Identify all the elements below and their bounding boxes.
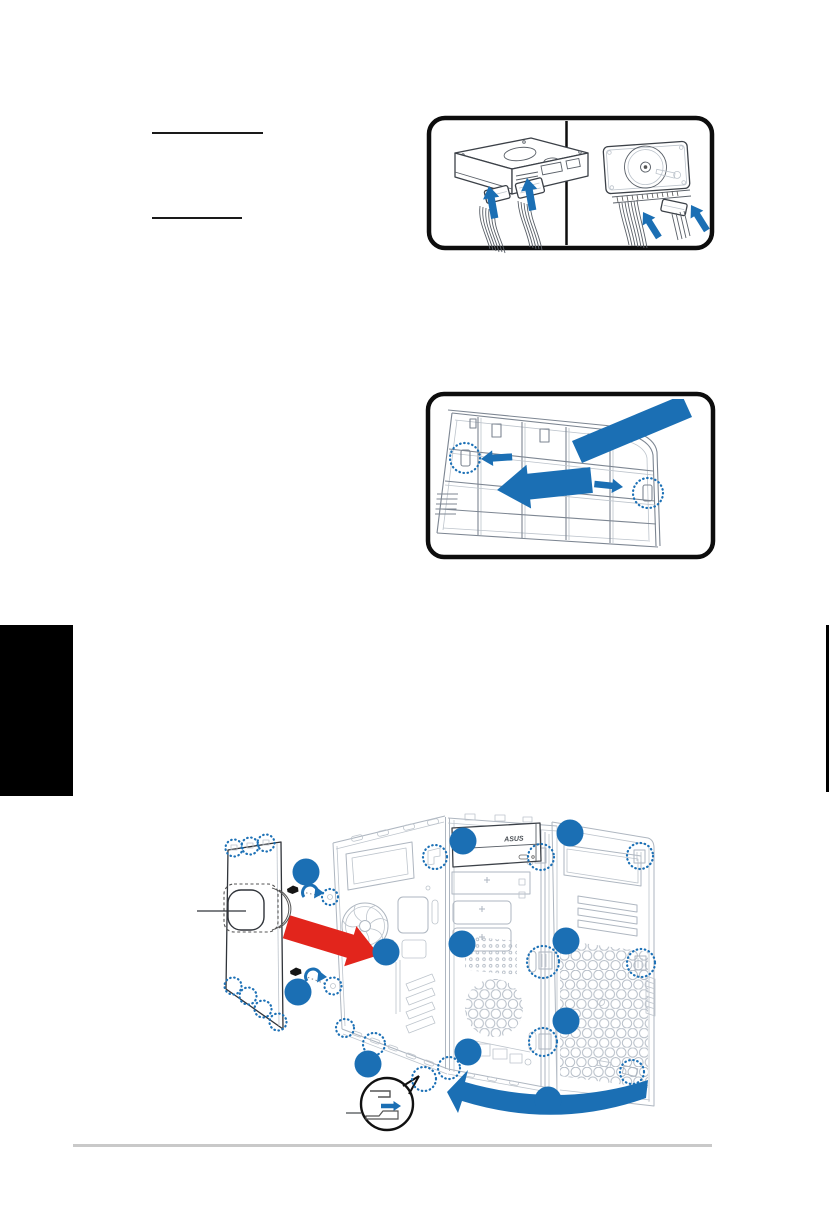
hdd-front-3d-view-icon	[455, 138, 588, 253]
connect-arrow-icon	[637, 208, 666, 241]
release-hook-arrow-icon	[480, 449, 512, 467]
step-dot	[373, 939, 400, 966]
remove-bezel-arrow-icon	[497, 465, 593, 509]
step-dot	[285, 979, 312, 1006]
hdd-top-view-icon	[603, 141, 713, 248]
bezel-vent-fins	[435, 494, 458, 514]
hook-slot-detail-inset	[346, 1076, 419, 1130]
manual-page: ASUS	[0, 0, 829, 1231]
insert-cover-arrow-icon	[283, 915, 379, 966]
step-dot	[553, 1008, 580, 1035]
figure-chassis-assembly: ASUS	[197, 814, 655, 1130]
release-hook-arrow-icon	[594, 477, 624, 494]
page-artwork: ASUS	[0, 0, 829, 1231]
step-dot	[557, 820, 584, 847]
cover-hand-grip	[228, 890, 264, 930]
thumbscrew-top	[287, 885, 333, 899]
latch-highlight-circle	[529, 1028, 557, 1056]
honeycomb-vent	[465, 979, 523, 1037]
pci-slot-openings	[396, 960, 435, 1033]
connect-arrow-icon	[685, 201, 714, 234]
screw-hole-highlight	[325, 978, 342, 995]
figure-hdd-cables	[429, 118, 713, 253]
side-cover-panel-icon	[197, 840, 291, 1029]
step-dot	[450, 828, 477, 855]
hook-highlight-circle	[450, 443, 480, 473]
step-dot	[449, 931, 476, 958]
step-dot	[535, 1087, 562, 1114]
pull-direction-arrow-icon	[572, 395, 692, 463]
bezel-hook-left	[461, 450, 470, 466]
step-dot	[553, 928, 580, 955]
optical-drive-brand-label: ASUS	[503, 835, 524, 843]
step-dot	[293, 859, 320, 886]
figure-bezel-removal	[428, 394, 713, 557]
